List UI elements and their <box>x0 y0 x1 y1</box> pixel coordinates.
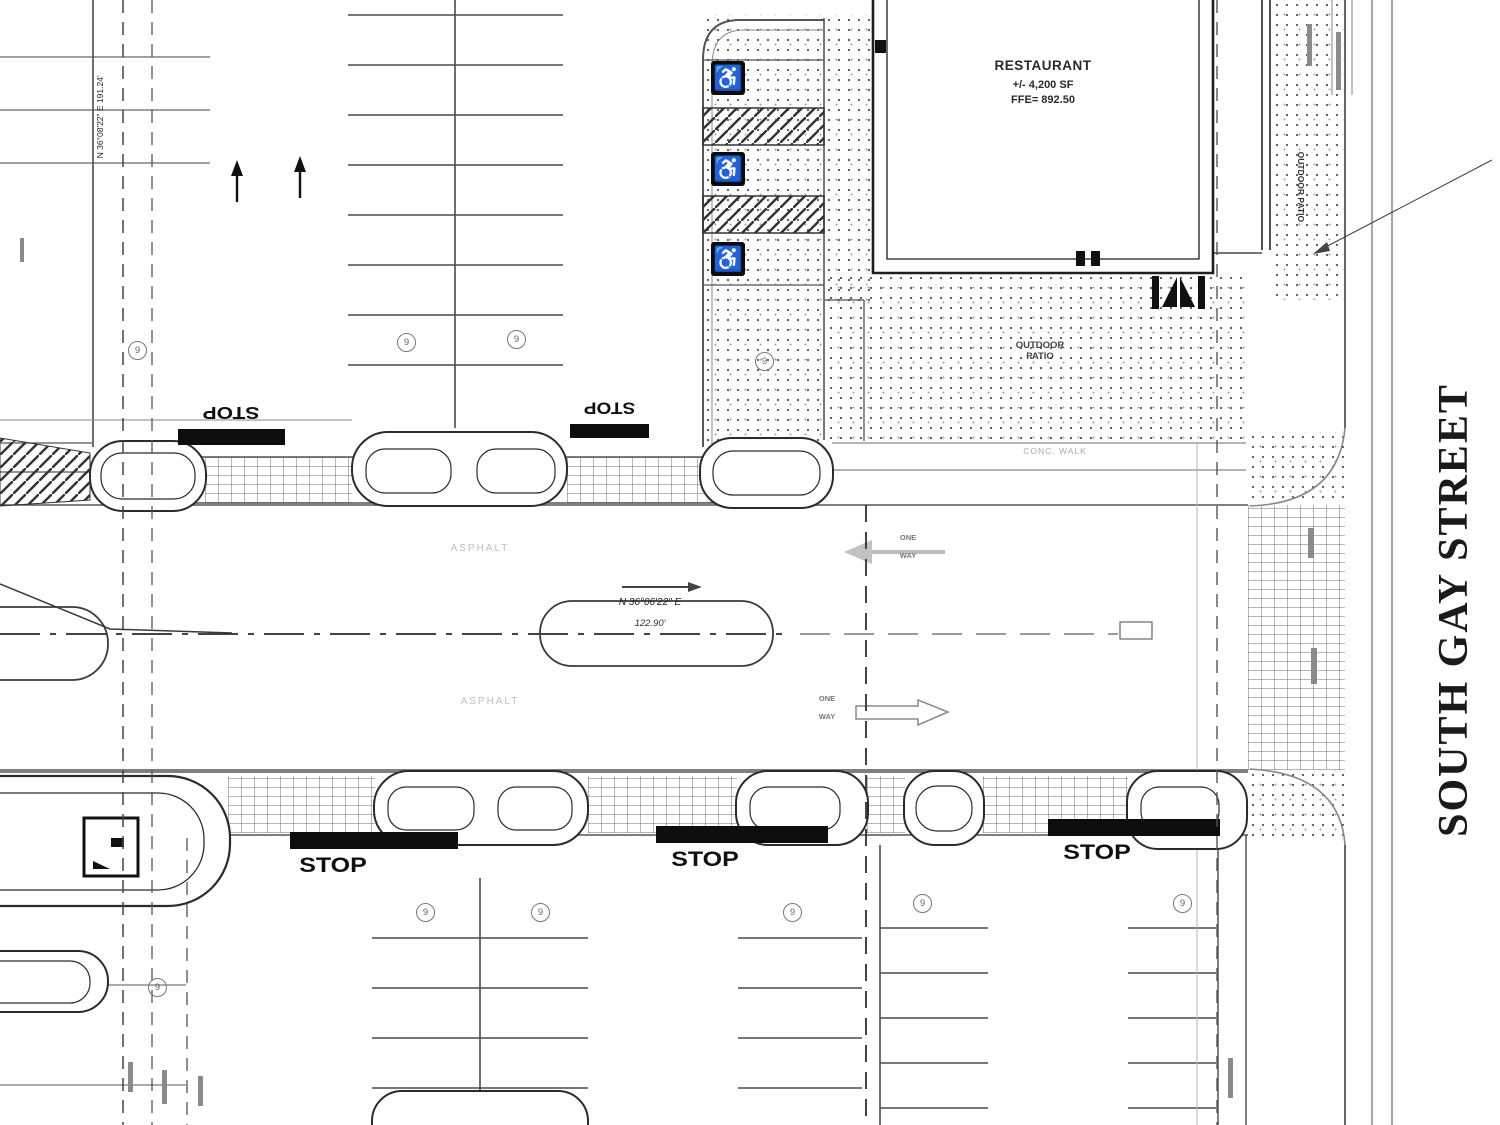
outdoor-patio-line2: PATIO <box>995 352 1085 363</box>
street-name: SOUTH GAY STREET <box>1430 340 1474 880</box>
stall-count-badge: 9 <box>397 333 416 352</box>
stall-count-badge: 9 <box>531 903 550 922</box>
site-plan-linework <box>0 0 1500 1125</box>
restaurant-building-outline <box>873 0 1270 273</box>
handicap-parking-icon: ♿ <box>711 242 745 276</box>
leader-line-patio <box>1313 160 1492 254</box>
outdoor-patio-label: OUTDOOR PATIO <box>995 341 1085 363</box>
flow-text-upper-1: ONE <box>893 534 923 543</box>
stall-count-badge: 9 <box>913 894 932 913</box>
centerline-bearing: N 36°06'22" E <box>560 597 740 609</box>
stop-bars <box>178 424 1220 849</box>
sign-symbol-box <box>84 818 138 876</box>
door-symbol <box>1152 276 1205 309</box>
property-line-bearing: N 36°08'22" E 191.24' <box>96 52 106 182</box>
handicap-parking-icon: ♿ <box>711 152 745 186</box>
stop-marking-bottom-1: STOP <box>288 853 378 877</box>
site-plan-drawing: ♿ ♿ ♿ SOUTH GAY STREET RESTAURANT +/- 4,… <box>0 0 1500 1125</box>
stop-marking-top-1: STOP <box>186 402 276 423</box>
flow-text-lower-1: ONE <box>812 695 842 704</box>
building-area: +/- 4,200 SF <box>943 79 1143 92</box>
stop-marking-top-2: STOP <box>567 398 652 417</box>
conc-walk-label: CONC. WALK <box>1000 447 1110 457</box>
stall-count-badge: 9 <box>783 903 802 922</box>
flow-text-lower-2: WAY <box>812 713 842 722</box>
stall-count-badge: 9 <box>128 341 147 360</box>
stall-count-badge: 9 <box>507 330 526 349</box>
stop-marking-bottom-3: STOP <box>1052 840 1142 864</box>
asphalt-label-upper: ASPHALT <box>420 543 540 555</box>
stall-count-badge: 9 <box>1173 894 1192 913</box>
stall-count-badge: 9 <box>755 352 774 371</box>
handicap-parking-icon: ♿ <box>711 61 745 95</box>
stall-count-badge: 9 <box>416 903 435 922</box>
outdoor-patio-side-label: OUTDOOR PATIO <box>1295 132 1305 242</box>
flow-text-upper-2: WAY <box>893 552 923 561</box>
asphalt-label-lower: ASPHALT <box>430 696 550 708</box>
centerline-distance: 122.90' <box>575 619 725 630</box>
stall-count-badge: 9 <box>148 978 167 997</box>
building-ffe: FFE= 892.50 <box>943 94 1143 107</box>
building-name: RESTAURANT <box>943 58 1143 74</box>
building-label: RESTAURANT +/- 4,200 SF FFE= 892.50 <box>943 58 1143 107</box>
stop-marking-bottom-2: STOP <box>660 847 750 871</box>
traffic-flow-arrows <box>231 156 948 725</box>
